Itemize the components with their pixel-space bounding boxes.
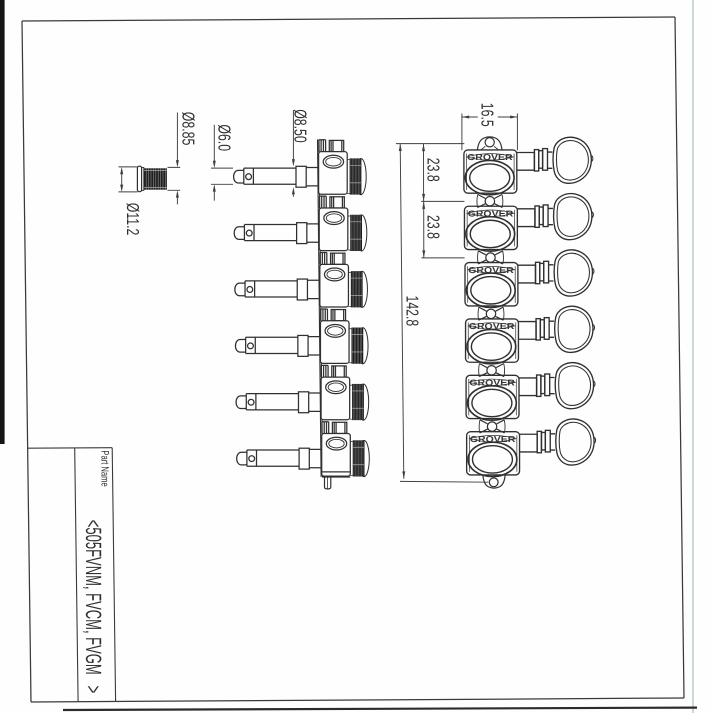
svg-text:Part Name: Part Name xyxy=(99,450,112,486)
svg-text:16.5: 16.5 xyxy=(477,103,497,127)
svg-text:Ø6.0: Ø6.0 xyxy=(214,124,234,151)
svg-text:Ø8.85: Ø8.85 xyxy=(179,112,199,146)
svg-text:23.8: 23.8 xyxy=(423,158,443,182)
svg-text:142.8: 142.8 xyxy=(403,296,423,327)
svg-text:Ø8.50: Ø8.50 xyxy=(290,109,310,143)
svg-text:<505FVNM, FVCM, FVGM >: <505FVNM, FVCM, FVGM > xyxy=(81,520,107,693)
svg-text:23.8: 23.8 xyxy=(424,215,444,239)
svg-text:Ø11.2: Ø11.2 xyxy=(123,203,143,236)
